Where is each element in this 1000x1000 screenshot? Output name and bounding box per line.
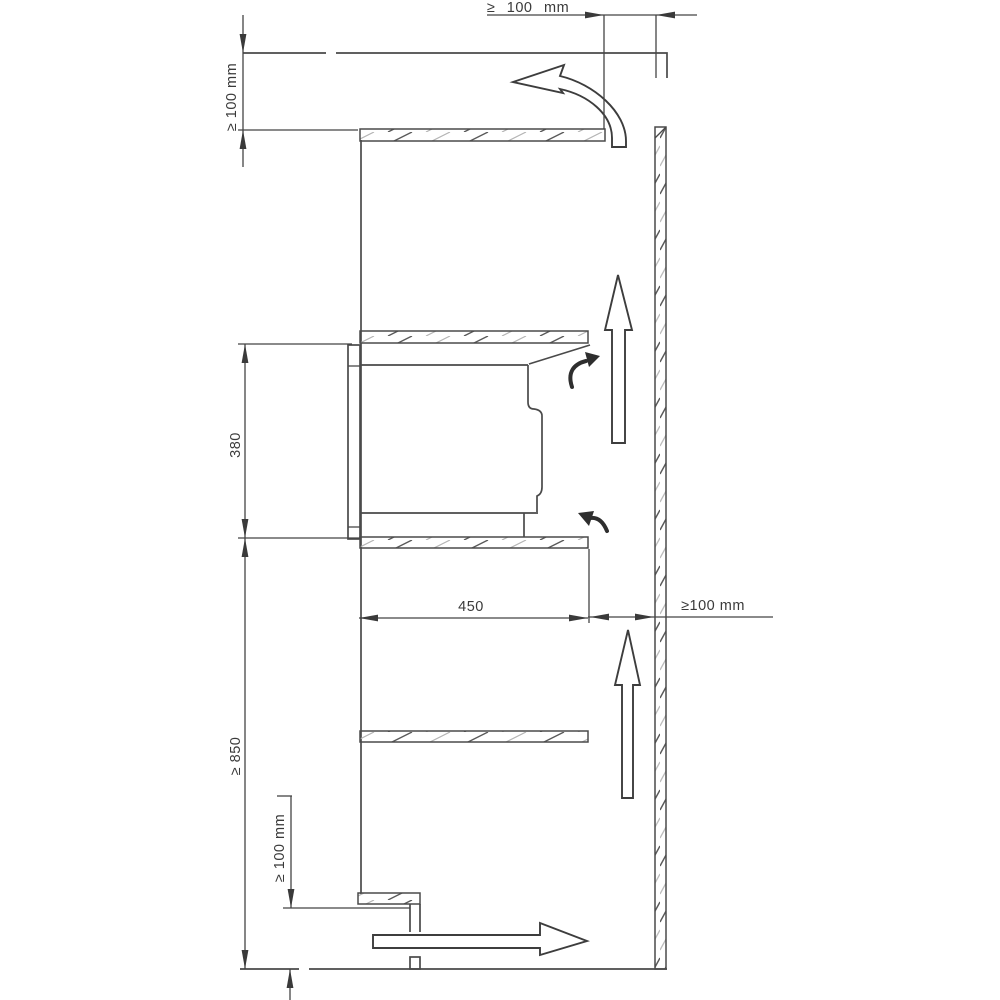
dimensions: ≥ 100 mm ≥ 100 mm 380 ≥ 850 [224,0,773,1000]
dimension-top-clearance: ≥ 100 mm [487,0,697,129]
airflow-up-arrow-upper-icon [605,275,632,443]
dimension-rear-clearance: ≥100 mm [588,598,773,620]
dimension-worktop-height: ≥ 850 [228,538,248,969]
airflow-small-curl-bottom-icon [578,511,607,531]
airflow-arrows [373,65,640,955]
oven-front-panel [348,345,360,539]
dimension-label-oven-height: 380 [228,432,244,458]
dimension-label-rear-clearance: ≥100 mm [681,598,745,614]
dimension-upper-left-clearance: ≥ 100 mm [224,15,358,167]
airflow-up-arrow-lower-icon [615,630,640,798]
cabinet-bottom-panel [358,893,420,904]
dimension-label-top-clearance: ≥ 100 mm [487,0,569,16]
cabinet-structure [240,53,667,969]
dimension-label-worktop-height: ≥ 850 [228,737,244,776]
dimension-niche-depth: 450 [359,549,589,623]
installation-diagram: ≥ 100 mm ≥ 100 mm 380 ≥ 850 [0,0,1000,1000]
cabinet-top-panel [360,129,605,141]
plinth-foot [410,957,420,969]
rear-wall [655,127,666,969]
shelf-above-oven [360,331,588,343]
built-in-oven [348,345,590,539]
shelf-below-oven [360,537,588,548]
dimension-oven-height: 380 [228,344,360,538]
oven-rear-profile [528,365,542,512]
diagram-canvas: ≥ 100 mm ≥ 100 mm 380 ≥ 850 [0,0,1000,1000]
airflow-small-curl-top-icon [570,352,600,387]
lower-shelf [360,731,588,742]
dimension-label-niche-depth: 450 [458,599,484,615]
airflow-right-arrow-plinth-icon [373,923,587,955]
plinth-board [410,904,420,932]
dimension-label-plinth-clearance: ≥ 100 mm [272,814,288,882]
dimension-label-upper-left-clearance: ≥ 100 mm [224,63,240,131]
